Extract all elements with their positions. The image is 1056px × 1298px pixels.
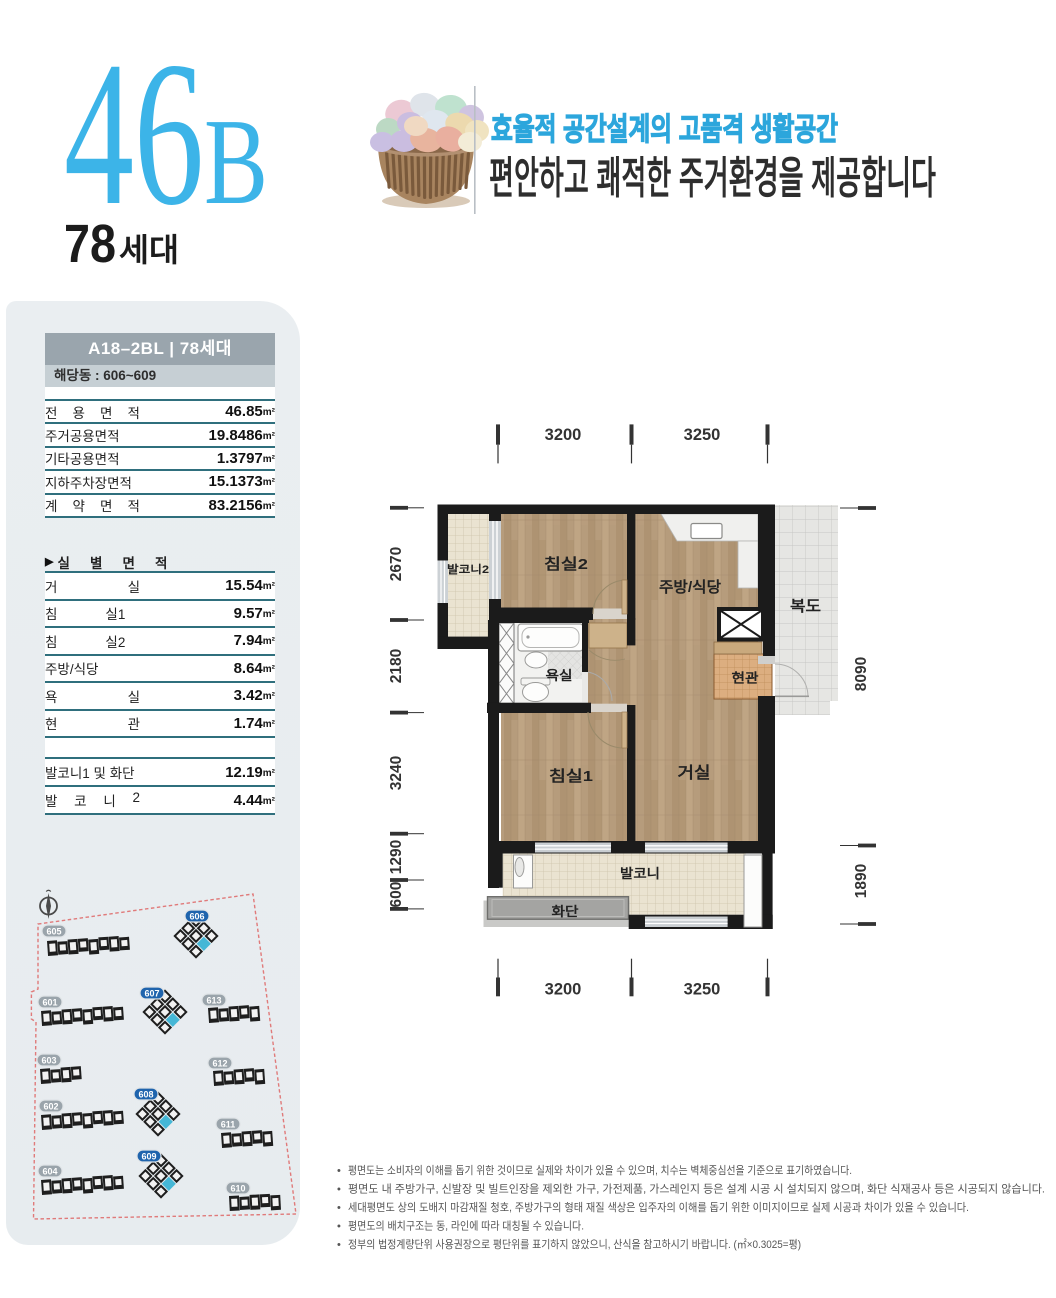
svg-text:정부의 법정계량단위 사용권장으로 평단위를 표기하지 않았: 정부의 법정계량단위 사용권장으로 평단위를 표기하지 않았으니, 산식을 참고… <box>348 1237 801 1251</box>
svg-text:604: 604 <box>42 1167 57 1177</box>
svg-text:600: 600 <box>388 882 405 908</box>
svg-text:평면도 내 주방가구, 신발장 및 빌트인장을 제외한 가구: 평면도 내 주방가구, 신발장 및 빌트인장을 제외한 가구, 가전제품, 가스… <box>348 1183 1045 1196</box>
svg-text:3250: 3250 <box>684 426 721 444</box>
svg-text:세대: 세대 <box>119 232 179 268</box>
svg-text:욕실: 욕실 <box>546 668 573 683</box>
svg-text:•: • <box>337 1165 341 1177</box>
svg-text:•: • <box>337 1202 341 1214</box>
svg-text:609: 609 <box>141 1152 156 1162</box>
svg-text:침실1: 침실1 <box>549 768 593 785</box>
svg-text:평면도는 소비자의 이해를 돕기 위한 것이므로 실제와 차: 평면도는 소비자의 이해를 돕기 위한 것이므로 실제와 차이가 있을 수 있으… <box>348 1163 852 1177</box>
svg-text:1290: 1290 <box>388 840 405 874</box>
svg-text:현관: 현관 <box>732 671 759 686</box>
svg-text:3240: 3240 <box>388 756 405 790</box>
svg-text:발코니: 발코니 <box>620 866 660 881</box>
svg-text:1890: 1890 <box>853 864 870 898</box>
svg-text:8090: 8090 <box>853 657 870 691</box>
svg-text:편안하고 쾌적한 주거환경을 제공합니다: 편안하고 쾌적한 주거환경을 제공합니다 <box>489 154 936 203</box>
svg-text:603: 603 <box>41 1056 56 1066</box>
svg-text:•: • <box>337 1184 341 1196</box>
svg-text:610: 610 <box>230 1184 245 1194</box>
svg-text:611: 611 <box>221 1120 236 1130</box>
svg-text:평면도의 배치구조는 동, 라인에 따라 대칭될 수 있습니: 평면도의 배치구조는 동, 라인에 따라 대칭될 수 있습니다. <box>348 1219 584 1233</box>
svg-text:주방/식당: 주방/식당 <box>659 578 721 596</box>
svg-text:78: 78 <box>64 214 116 274</box>
svg-text:발코니2: 발코니2 <box>447 562 489 576</box>
svg-text:화단: 화단 <box>552 904 579 919</box>
svg-text:효율적 공간설계의 고품격 생활공간: 효율적 공간설계의 고품격 생활공간 <box>491 112 838 147</box>
svg-text:B: B <box>204 93 268 230</box>
svg-text:602: 602 <box>43 1102 58 1112</box>
svg-text:세대평면도 상의 도배지 마감재질 청호, 주방가구의 형태: 세대평면도 상의 도배지 마감재질 청호, 주방가구의 형태 재질 색상은 입주… <box>348 1200 969 1214</box>
svg-text:608: 608 <box>138 1090 153 1100</box>
svg-text:601: 601 <box>42 998 57 1008</box>
svg-text:605: 605 <box>46 927 61 937</box>
svg-text:침실2: 침실2 <box>544 556 588 573</box>
svg-text:3250: 3250 <box>684 981 721 999</box>
svg-text:거실: 거실 <box>678 764 711 782</box>
svg-text:3200: 3200 <box>545 426 582 444</box>
svg-text:612: 612 <box>212 1059 227 1069</box>
svg-text:•: • <box>337 1221 341 1233</box>
svg-text:607: 607 <box>144 989 159 999</box>
svg-text:606: 606 <box>189 912 204 922</box>
svg-text:복도: 복도 <box>790 598 821 615</box>
svg-text:•: • <box>337 1239 341 1251</box>
svg-text:613: 613 <box>206 996 221 1006</box>
svg-text:2180: 2180 <box>388 649 405 683</box>
svg-text:3200: 3200 <box>545 981 582 999</box>
svg-text:2670: 2670 <box>388 547 405 581</box>
